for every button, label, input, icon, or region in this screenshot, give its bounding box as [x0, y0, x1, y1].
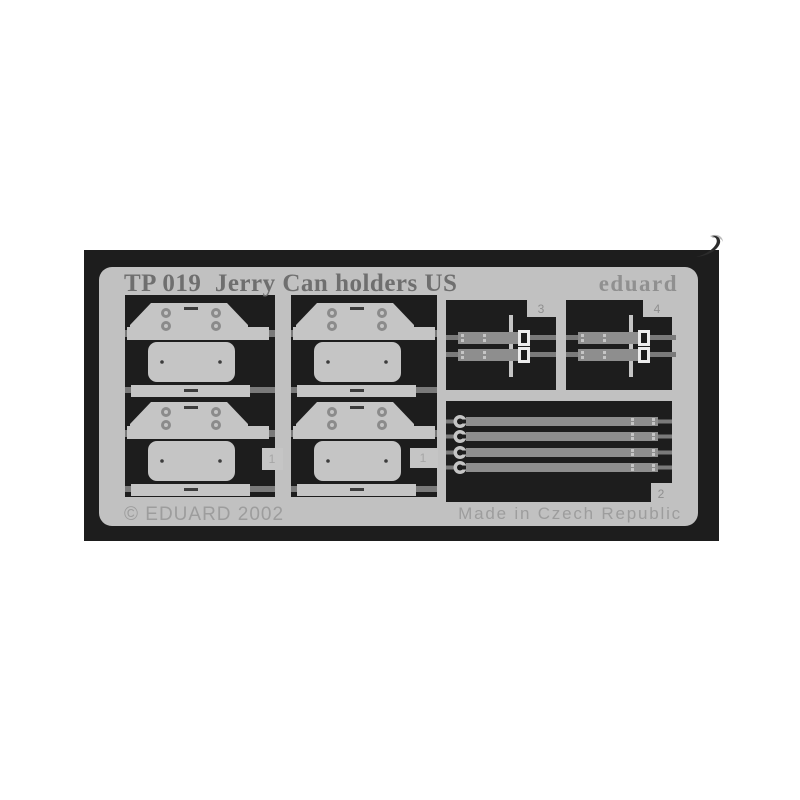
- copyright-text: © EDUARD 2002: [124, 504, 284, 525]
- part-number-label: 2: [658, 487, 665, 501]
- made-in-text: Made in Czech Republic: [458, 504, 682, 523]
- sheet-svg: 1 1 3 4 2 TP 019 Jerry Can holders US ed…: [84, 250, 719, 541]
- part-number-label: 1: [269, 452, 276, 466]
- curl-svg: [694, 233, 730, 259]
- part-number-label: 1: [420, 451, 427, 465]
- sheet-title: TP 019 Jerry Can holders US: [124, 270, 457, 297]
- photo-artifact-curl: [694, 233, 730, 259]
- photo-etch-sheet: 1 1 3 4 2 TP 019 Jerry Can holders US ed…: [84, 250, 719, 541]
- part-number-label: 3: [538, 302, 545, 316]
- part-number-label: 4: [654, 302, 661, 316]
- curl-shadow: [696, 236, 720, 257]
- brand-logo: eduard: [599, 271, 678, 296]
